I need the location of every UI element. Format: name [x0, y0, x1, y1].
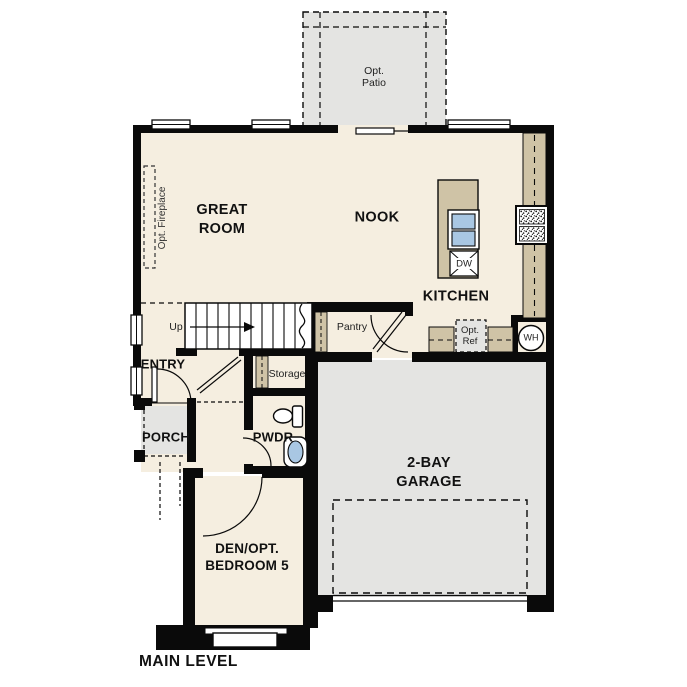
floor-plan-drawing: [0, 0, 687, 687]
room-label-kitchen: KITCHEN: [423, 288, 490, 307]
room-label-entry: ENTRY: [141, 356, 186, 373]
room-label-porch: PORCH: [142, 429, 190, 446]
opt-fireplace-label: Opt. Fireplace: [157, 187, 169, 250]
opt-patio-label: Opt. Patio: [362, 65, 386, 89]
room-label-den: DEN/OPT. BEDROOM 5: [205, 540, 289, 574]
storage-label: Storage: [269, 368, 306, 380]
garage-door: [333, 594, 527, 603]
storage-shelf: [256, 356, 268, 388]
sliding-door: [338, 125, 408, 134]
pantry-label: Pantry: [337, 321, 367, 333]
pantry-shelf: [315, 312, 327, 352]
room-label-garage: 2-BAY GARAGE: [396, 454, 461, 492]
opt-ref-label: Opt. Ref: [461, 325, 479, 347]
up-label: Up: [169, 321, 182, 333]
water-heater-label: WH: [524, 333, 539, 344]
room-label-great-room: GREAT ROOM: [196, 201, 247, 239]
range-icon: [516, 206, 548, 244]
dishwasher-label: DW: [456, 259, 472, 270]
floor-plan: GREAT ROOM NOOK KITCHEN ENTRY PORCH PWDR…: [0, 0, 687, 687]
den-window: [205, 628, 287, 647]
room-label-pwdr: PWDR: [253, 429, 294, 446]
sink-icon: [448, 210, 479, 249]
room-label-nook: NOOK: [355, 209, 400, 228]
main-level-caption: MAIN LEVEL: [139, 653, 238, 671]
